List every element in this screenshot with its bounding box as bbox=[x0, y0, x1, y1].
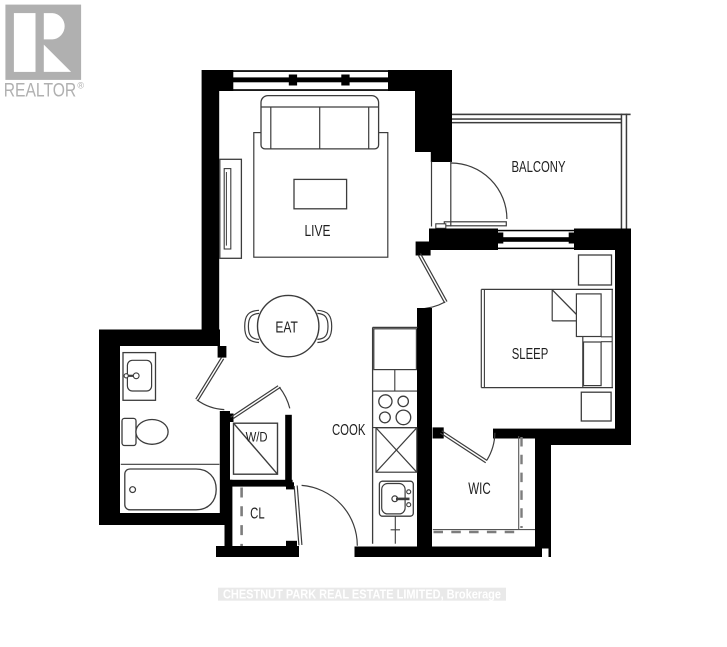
svg-text:LIVE: LIVE bbox=[305, 223, 331, 240]
svg-text:BALCONY: BALCONY bbox=[512, 159, 566, 176]
svg-text:CL: CL bbox=[250, 505, 265, 522]
svg-text:WIC: WIC bbox=[468, 480, 491, 498]
svg-text:CHESTNUT PARK REAL ESTATE LIMI: CHESTNUT PARK REAL ESTATE LIMITED, Broke… bbox=[223, 586, 501, 601]
svg-text:EAT: EAT bbox=[275, 320, 298, 337]
svg-text:SLEEP: SLEEP bbox=[512, 346, 549, 363]
svg-text:COOK: COOK bbox=[332, 422, 366, 439]
svg-text:REALTOR: REALTOR bbox=[4, 80, 77, 101]
svg-text:W/D: W/D bbox=[246, 429, 268, 444]
svg-text:®: ® bbox=[77, 81, 84, 91]
